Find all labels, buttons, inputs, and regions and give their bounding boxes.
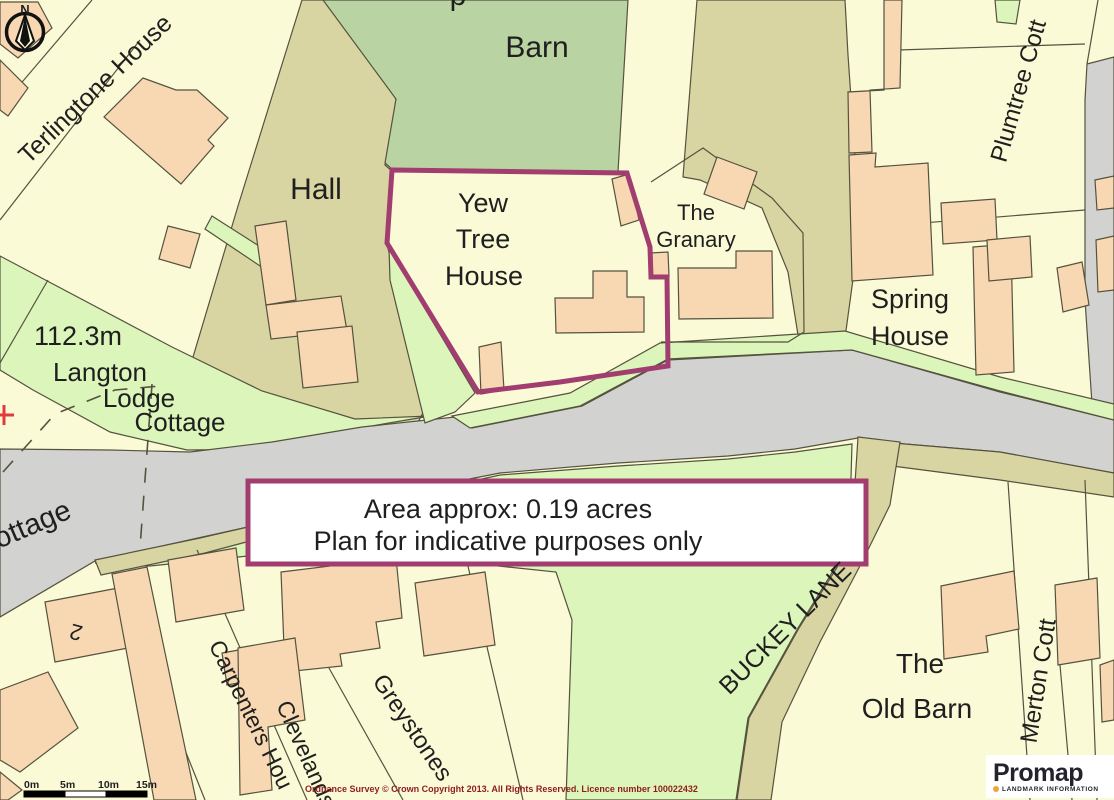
map-label-old-barn-line-2: Old Barn — [862, 693, 973, 724]
map-label-scale-tick-10m: 10m — [98, 779, 119, 791]
map-label-north-letter: N — [20, 2, 29, 17]
scale-bar — [24, 791, 147, 797]
map-label-langton-line-3: Cottage — [134, 407, 225, 437]
map-label-spring-line-1: Spring — [871, 284, 949, 314]
building — [1100, 660, 1114, 722]
landmark-dot-icon — [993, 786, 999, 792]
building — [415, 572, 495, 656]
map-label-yew-line-3: House — [445, 261, 523, 291]
building — [1055, 578, 1100, 665]
map-label-area-line-1: Area approx: 0.19 acres — [364, 494, 652, 524]
promap-logo: Promap LANDMARK INFORMATION — [986, 755, 1114, 798]
building — [479, 342, 504, 394]
map-label-granary-line-1: The — [677, 200, 715, 225]
map-canvas: Terlingtone HousepBarnHallYewTreeHouseTh… — [0, 0, 1114, 800]
promap-tagline-text: LANDMARK INFORMATION — [1002, 786, 1099, 793]
map-label-spot-height: 112.3m — [34, 321, 122, 351]
building — [45, 588, 128, 662]
map-label-scale-tick-0m: 0m — [24, 779, 39, 791]
building — [1095, 176, 1114, 210]
map-label-cut-top-fragment: p — [450, 0, 467, 12]
building — [297, 326, 358, 388]
map-label-copyright: Ordnance Survey © Crown Copyright 2013. … — [305, 784, 698, 794]
map-label-scale-tick-15m: 15m — [136, 779, 157, 791]
map-label-barn: Barn — [505, 31, 568, 64]
map-label-hall: Hall — [290, 173, 342, 206]
building — [849, 153, 933, 281]
map-label-granary-line-2: Granary — [656, 227, 735, 252]
building — [168, 548, 244, 622]
map-label-old-barn-line-1: The — [896, 648, 944, 679]
map-label-scale-tick-5m: 5m — [60, 779, 75, 791]
top-edge-green-patch — [995, 0, 1020, 24]
site-plan-map: Terlingtone HousepBarnHallYewTreeHouseTh… — [0, 0, 1114, 800]
map-label-yew-line-2: Tree — [456, 224, 511, 254]
map-label-spring-line-2: House — [871, 321, 949, 351]
building — [941, 199, 997, 244]
map-label-yew-line-1: Yew — [458, 188, 509, 218]
map-label-area-line-2: Plan for indicative purposes only — [314, 526, 703, 556]
building — [987, 236, 1032, 281]
building — [1096, 236, 1114, 292]
promap-brand-text: Promap — [993, 761, 1083, 785]
